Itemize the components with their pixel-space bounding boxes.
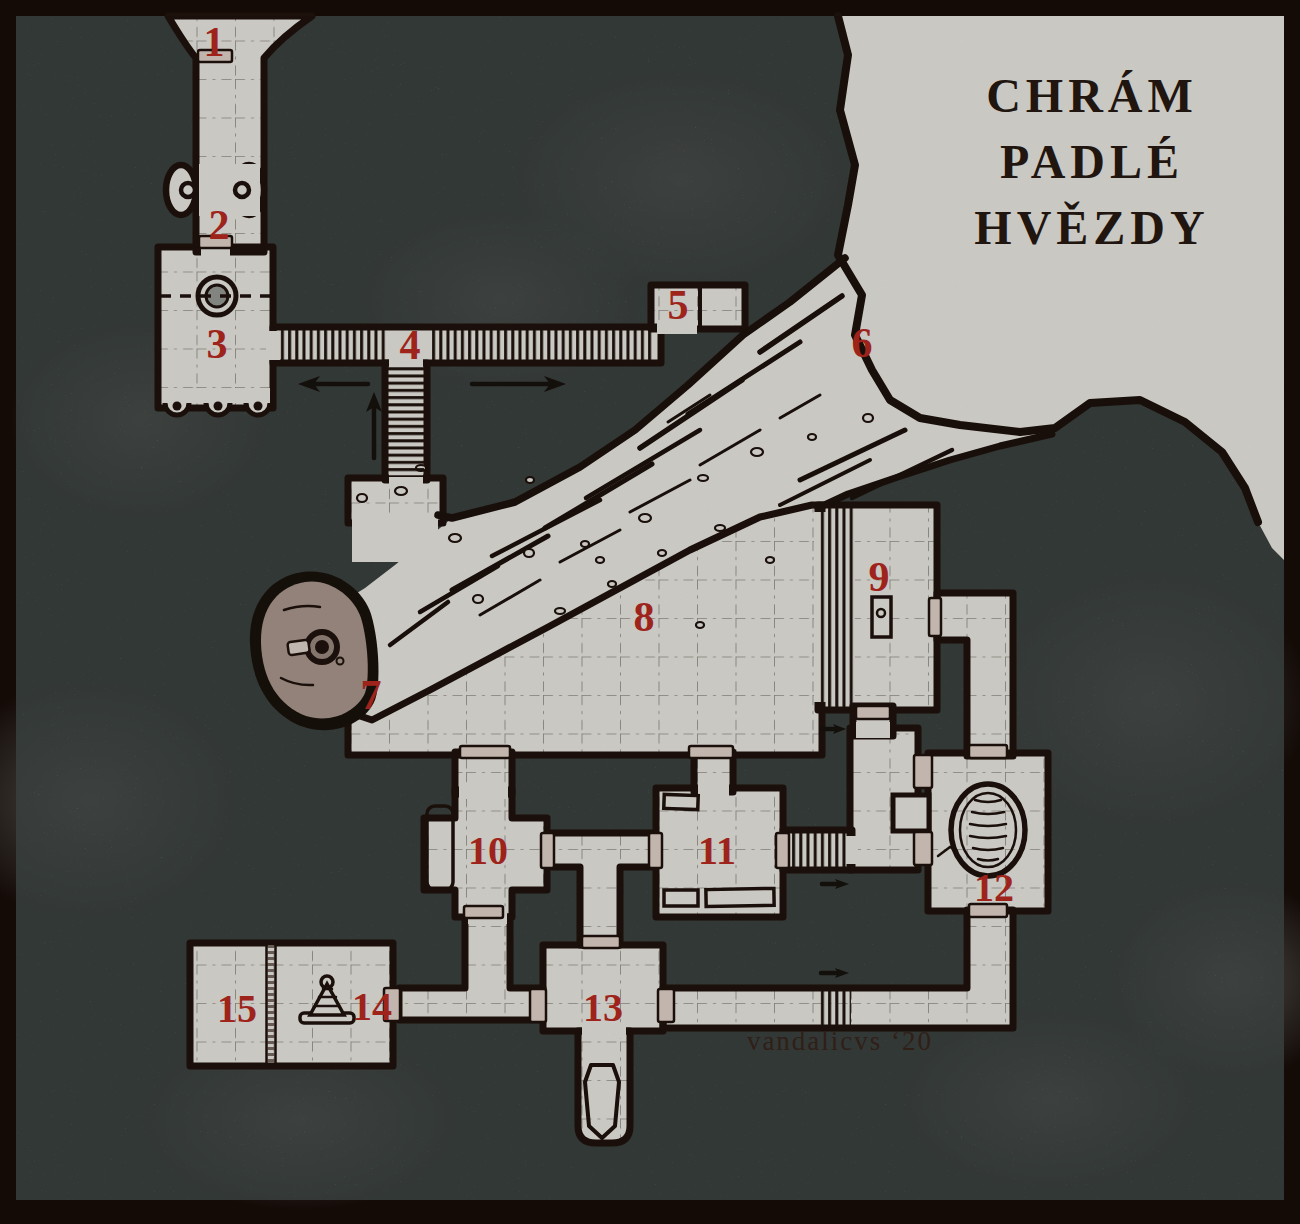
paper-grain <box>16 16 1284 1200</box>
map-canvas: 1 2 3 4 5 6 7 8 9 10 11 12 13 14 15 CHRÁ… <box>0 0 1300 1224</box>
dungeon-map: 1 2 3 4 5 6 7 8 9 10 11 12 13 14 15 CHRÁ… <box>0 0 1300 1224</box>
